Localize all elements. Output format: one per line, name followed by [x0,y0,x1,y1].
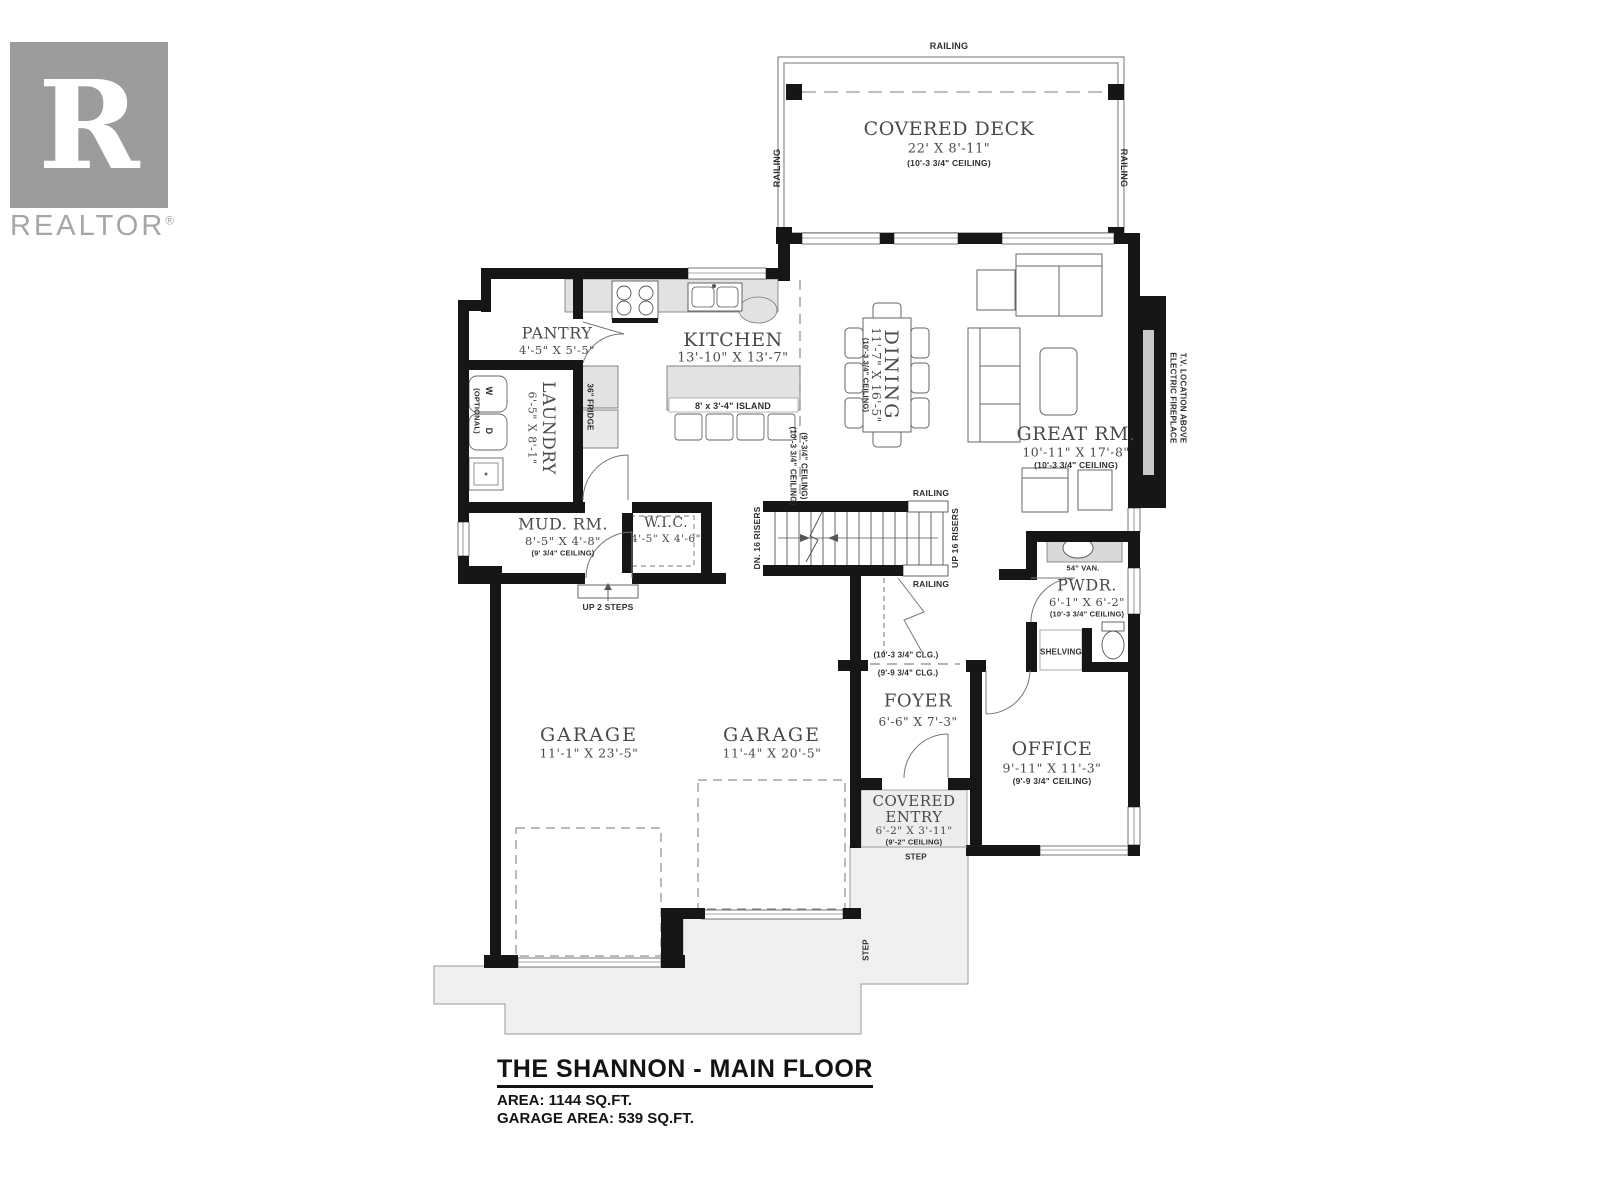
plan-title: THE SHANNON - MAIN FLOOR [497,1055,873,1088]
toilet-tank [1102,622,1124,631]
pwdr-ceiling: (10'-3 3/4" CEILING) [1050,610,1124,619]
pwdr-name: PWDR. [1057,576,1117,595]
kitchen-mud-door [583,455,628,500]
fireplace-insert [1143,330,1154,475]
stairs [775,501,948,576]
plan-garage-area: GARAGE AREA: 539 SQ.FT. [497,1110,873,1127]
office-door [986,670,1030,714]
armchair-bottom [1022,468,1068,512]
office-name: OFFICE [1012,738,1093,760]
kitchen-name: KITCHEN [683,329,782,351]
up-2-steps-label: UP 2 STEPS [583,602,634,612]
railing-label-stairs-top: RAILING [913,488,949,498]
great-room-ceiling: (10'-3 3/4" CEILING) [1034,460,1118,470]
driveway-walkway [434,846,968,1034]
island-label: 8' x 3'-4" ISLAND [695,401,771,411]
railing-label-left: RAILING [772,149,782,187]
deck-ceiling: (10'-3 3/4" CEILING) [907,158,991,168]
ceiling-break-9: (9'-3/4" CEILING) [800,432,809,499]
laundry-name: LAUNDRY [538,381,558,474]
up-2-steps-symbol [578,583,638,601]
dryer-label: D [484,428,494,435]
washer-label: W [484,387,494,396]
shelving-label: SHELVING [1040,648,1082,657]
entry-ceiling: (9'-2" CEILING) [886,838,943,847]
vanity-label: 54" VAN. [1067,564,1100,573]
sofa-vertical [968,328,1020,442]
great-room-furniture [968,254,1112,512]
coffee-table [1040,348,1077,415]
fireplace-label-2: T.V. LOCATION ABOVE [1179,353,1188,444]
kitchen-dims: 13'-10" X 13'-7" [677,351,788,366]
railing-label-top: RAILING [930,41,968,51]
kitchen-sink [688,283,742,311]
entry-name-2: ENTRY [885,808,942,826]
pantry-name: PANTRY [522,324,593,343]
office-dims: 9'-11" X 11'-3" [1003,761,1102,776]
garage-left-dims: 11'-1" X 23'-5" [540,746,639,761]
pantry-dims: 4'-5" X 5'-5" [519,343,595,357]
mud-room-name: MUD. RM. [518,515,608,534]
fridge [577,366,618,448]
dn-risers-label: DN. 16 RISERS [752,506,762,569]
great-room-name: GREAT RM. [1016,423,1135,445]
garage-left-name: GARAGE [540,724,638,746]
great-room-dims: 10'-11" X 17'-8" [1022,445,1129,460]
foyer-name: FOYER [884,691,952,712]
toilet-bowl [1102,631,1124,659]
wic-name: W.I.C. [644,515,688,531]
deck-dims: 22' X 8'-11" [908,142,990,157]
foyer-closet-bifold [884,578,924,655]
floor-plan-drawing [0,0,1600,1200]
plan-area: AREA: 1144 SQ.FT. [497,1092,873,1109]
railing-label-right: RAILING [1119,149,1129,187]
laundry-dims: 6'-5" X 8'-1" [526,392,539,465]
counter-round-end [739,297,777,323]
up-risers-label: UP 16 RISERS [950,508,960,568]
mud-room-dims: 8'-5" X 4'-8" [525,534,601,548]
office-ceiling: (9'-9 3/4" CEILING) [1013,776,1092,786]
dining-ceiling: (10'-3 3/4" CEILING) [862,338,871,412]
armchair-top [977,270,1015,310]
side-table [1078,470,1112,510]
foyer-dims: 6'-6" X 7'-3" [879,715,958,729]
entry-dims: 6'-2" X 3'-11" [875,825,952,837]
floor-plan-page: R REALTOR® [0,0,1600,1200]
pwdr-dims: 6'-1" X 6'-2" [1049,595,1125,609]
garage-right-name: GARAGE [723,724,821,746]
deck-name: COVERED DECK [864,118,1035,140]
step-label-h: STEP [905,853,927,862]
dining-dims: 11'-7" X 16'-5" [869,327,883,422]
optional-label: (OPTIONAL) [473,388,482,434]
wic-dims: 4'-5" X 4'-6" [631,533,701,545]
fridge-label: 36" FRIDGE [586,383,595,430]
dining-name: DINING [880,330,902,421]
front-door [904,734,948,778]
mud-room-ceiling: (9' 3/4" CEILING) [532,549,595,558]
railing-label-stairs-bottom: RAILING [913,579,949,589]
title-block: THE SHANNON - MAIN FLOOR AREA: 1144 SQ.F… [497,1055,873,1127]
garage-right-dims: 11'-4" X 20'-5" [723,746,822,761]
clg-10-label: (10'-3 3/4" CLG.) [873,651,938,660]
stove [612,281,658,323]
step-label-v: STEP [862,939,871,961]
ceiling-break-10: (10'-3 3/4" CEILING) [789,426,798,505]
fireplace-label-1: ELECTRIC FIREPLACE [1169,352,1178,443]
clg-9-label: (9'-9 3/4" CLG.) [878,669,938,678]
